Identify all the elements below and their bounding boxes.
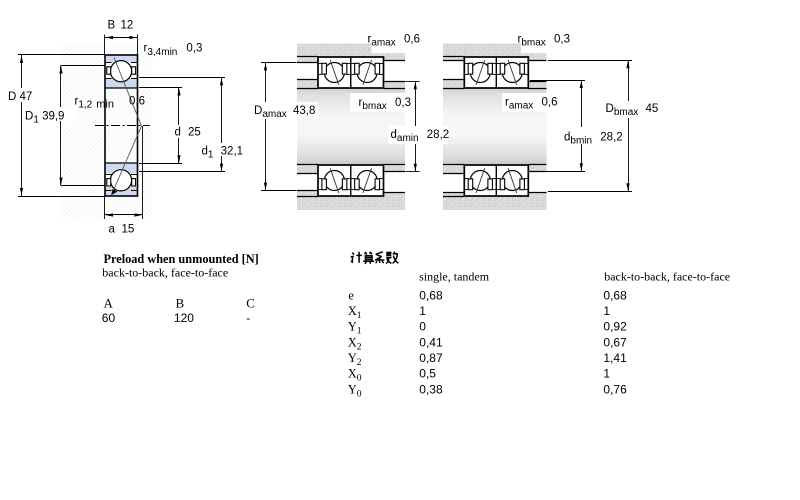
svg-text:-: - [246,311,250,325]
svg-text:1: 1 [603,304,610,318]
svg-text:120: 120 [174,311,194,325]
svg-text:0,76: 0,76 [603,382,627,396]
svg-text:single, tandem: single, tandem [419,270,490,284]
svg-text:12: 12 [121,20,134,32]
svg-text:0,92: 0,92 [603,320,627,334]
svg-text:0: 0 [419,320,426,334]
svg-text:Preload when unmounted [N]: Preload when unmounted [N] [104,252,259,266]
svg-text:0,68: 0,68 [603,288,627,302]
svg-text:0,41: 0,41 [419,335,443,349]
svg-text:d: d [175,127,181,139]
svg-text:1: 1 [603,367,610,381]
svg-text:D 47: D 47 [8,91,32,103]
svg-text:1: 1 [419,304,426,318]
svg-text:a: a [109,224,116,236]
svg-text:A: A [104,296,114,311]
svg-text:B: B [176,296,185,311]
svg-text:0,67: 0,67 [603,335,627,349]
svg-text:1,41: 1,41 [603,351,627,365]
svg-text:C: C [246,296,255,311]
svg-text:e: e [348,288,354,302]
svg-text:back-to-back, face-to-face: back-to-back, face-to-face [102,265,228,279]
svg-text:back-to-back, face-to-face: back-to-back, face-to-face [604,270,730,284]
svg-text:B: B [108,20,116,32]
svg-text:0,5: 0,5 [419,367,436,381]
svg-text:0,68: 0,68 [419,288,443,302]
svg-text:25: 25 [188,127,201,139]
svg-text:15: 15 [122,224,135,236]
svg-text:60: 60 [102,311,116,325]
svg-text:0,87: 0,87 [419,351,443,365]
svg-text:0,38: 0,38 [419,382,443,396]
